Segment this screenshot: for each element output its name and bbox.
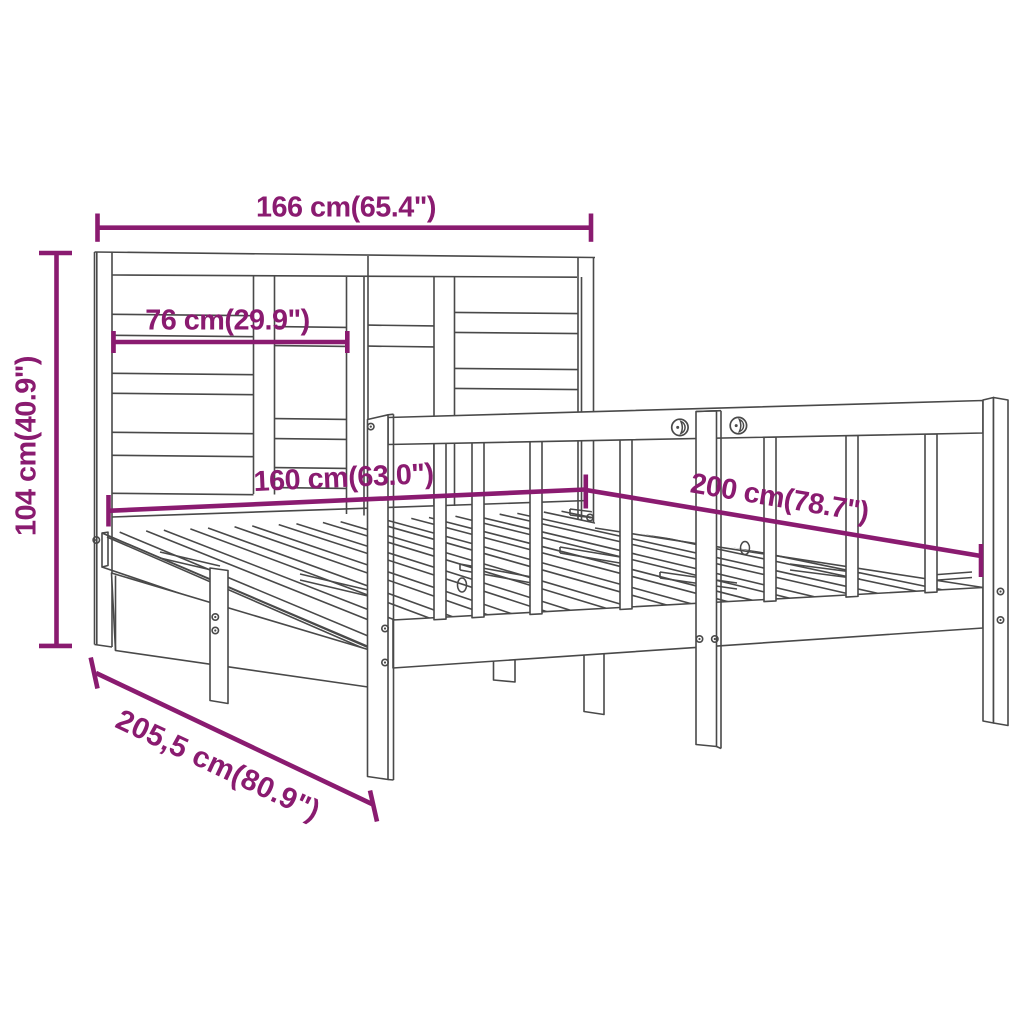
svg-text:104 cm(40.9"): 104 cm(40.9") [11, 356, 43, 536]
svg-text:76 cm(29.9"): 76 cm(29.9") [145, 305, 310, 337]
svg-text:166 cm(65.4"): 166 cm(65.4") [256, 192, 436, 224]
